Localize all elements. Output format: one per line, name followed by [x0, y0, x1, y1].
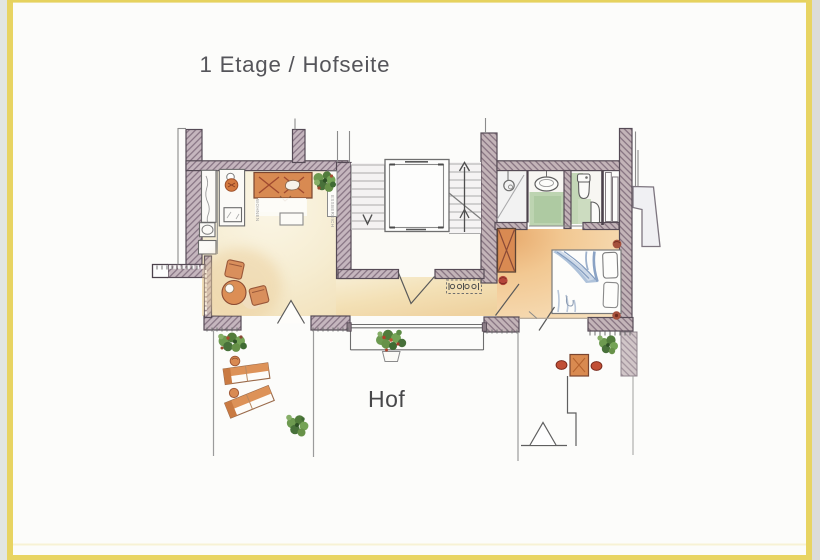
svg-text:WOHNEN: WOHNEN	[255, 199, 260, 221]
svg-text:ESSBEREICH: ESSBEREICH	[330, 195, 335, 227]
svg-text:1 Etage / Hofseite: 1 Etage / Hofseite	[200, 52, 391, 77]
svg-text:Hof: Hof	[368, 386, 405, 412]
